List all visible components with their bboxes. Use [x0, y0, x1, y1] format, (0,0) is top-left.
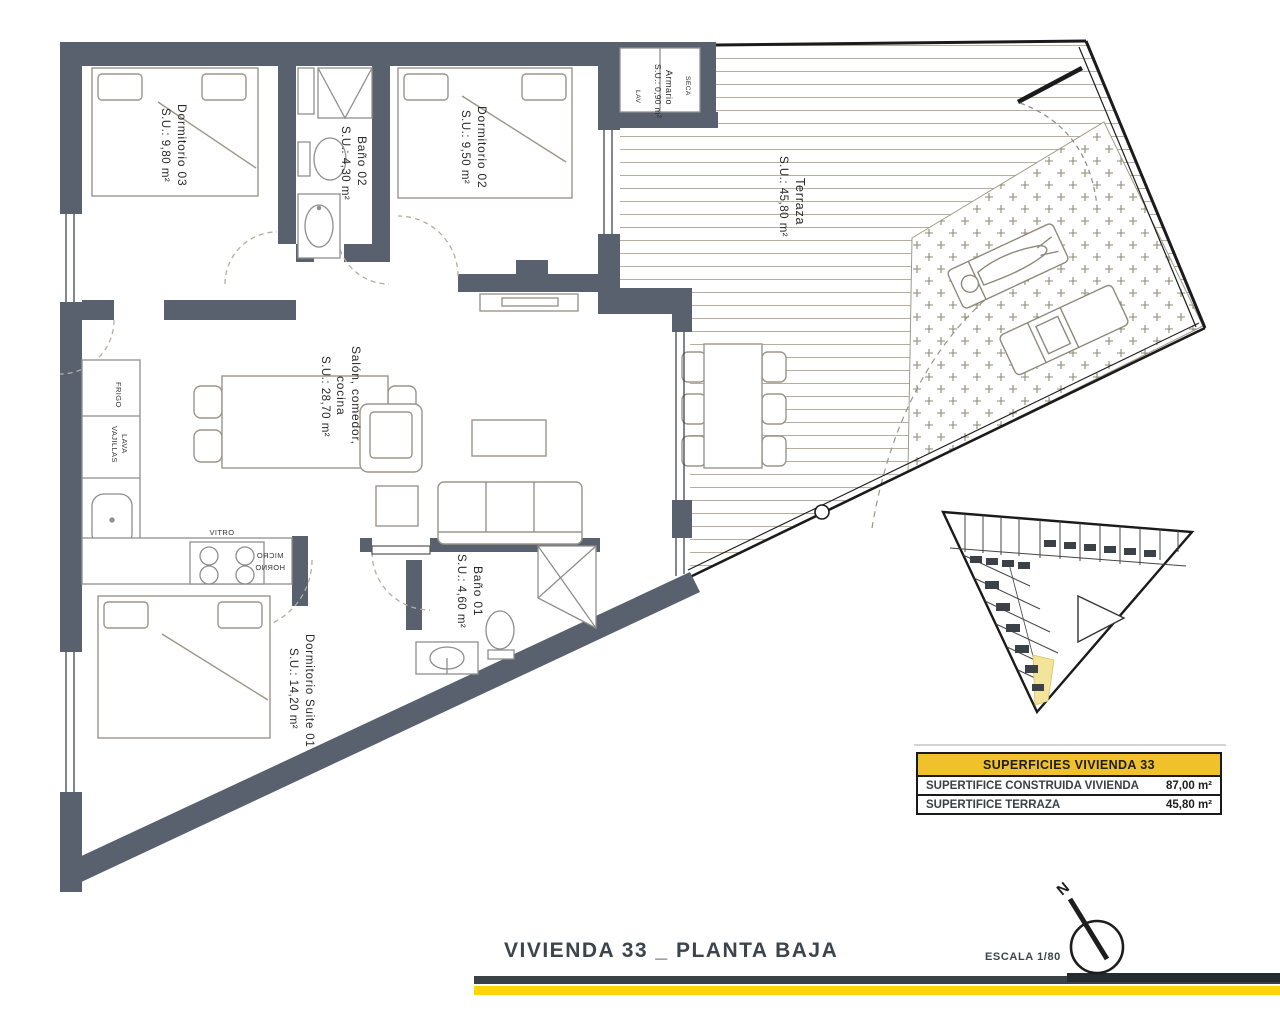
north-compass: N: [1054, 879, 1123, 973]
row-value: 45,80 m²: [1166, 799, 1212, 811]
svg-text:S.U.: 4,30 m²: S.U.: 4,30 m²: [339, 126, 351, 200]
bed-suite-01: [98, 596, 270, 738]
bathroom1-fixtures: [416, 546, 596, 674]
svg-text:S.U.: 9,80 m²: S.U.: 9,80 m²: [159, 108, 171, 182]
svg-text:cocina: cocina: [334, 376, 348, 416]
bed-dormitorio-03: [92, 68, 258, 196]
fridge-label: FRIGO: [114, 382, 123, 408]
row-label: SUPERTIFICE CONSTRUIDA VIVIENDA: [926, 780, 1139, 792]
svg-text:S.U.: 4,60 m²: S.U.: 4,60 m²: [455, 554, 467, 628]
svg-text:Armario: Armario: [664, 70, 674, 105]
svg-text:SECA: SECA: [684, 76, 691, 96]
svg-text:Salón, comedor,: Salón, comedor,: [349, 346, 363, 445]
row-label: SUPERTIFICE TERRAZA: [926, 799, 1060, 811]
room-label-bano-02: Baño 02 S.U.: 4,30 m²: [339, 126, 369, 200]
page-title: VIVIENDA 33 _ PLANTA BAJA: [504, 939, 838, 962]
oven-label: HORNO: [255, 563, 285, 572]
svg-text:Dormitorio 02: Dormitorio 02: [475, 106, 489, 188]
table-row: SUPERTIFICE CONSTRUIDA VIVIENDA 87,00 m²: [918, 777, 1220, 794]
washer-label: LAV: [634, 90, 641, 103]
svg-text:Dormitorio Suite 01: Dormitorio Suite 01: [303, 634, 315, 748]
svg-text:Dormitorio 03: Dormitorio 03: [175, 104, 189, 186]
row-value: 87,00 m²: [1166, 780, 1212, 792]
svg-text:Baño 01: Baño 01: [471, 566, 485, 616]
scale-label: ESCALA 1/80: [985, 951, 1061, 963]
hob-label: VITRO: [210, 528, 235, 537]
site-key-plan: [943, 512, 1192, 712]
divider-bars: [474, 973, 1280, 995]
living-room-furniture: [360, 294, 582, 544]
svg-text:FRIGO: FRIGO: [114, 382, 123, 408]
svg-text:VAJILLAS: VAJILLAS: [110, 426, 119, 463]
dryer-label: SECA: [684, 76, 691, 96]
room-label-suite-01: Dormitorio Suite 01 S.U.: 14,20 m²: [287, 634, 315, 748]
north-label: N: [1054, 879, 1073, 899]
table-top-rule: [914, 744, 1226, 746]
bathroom1-door-leaf: [372, 546, 430, 554]
svg-text:Terraza: Terraza: [793, 178, 807, 225]
summary-table: SUPERFICIES VIVIENDA 33 SUPERTIFICE CONS…: [916, 752, 1222, 815]
svg-text:S.U.: 9,50 m²: S.U.: 9,50 m²: [459, 110, 471, 184]
summary-table-header: SUPERFICIES VIVIENDA 33: [918, 754, 1220, 777]
svg-text:S.U.: 45,80 m²: S.U.: 45,80 m²: [777, 156, 789, 237]
svg-text:S.U.: 14,20 m²: S.U.: 14,20 m²: [287, 648, 299, 729]
microwave-label: MICRO: [257, 551, 284, 560]
outdoor-dining-table: [682, 344, 786, 468]
room-label-bano-01: Baño 01 S.U.: 4,60 m²: [455, 554, 485, 628]
svg-text:LAVA: LAVA: [120, 434, 129, 454]
svg-text:Baño 02: Baño 02: [355, 136, 369, 186]
svg-text:LAV: LAV: [634, 90, 641, 103]
table-row: SUPERTIFICE TERRAZA 45,80 m²: [918, 794, 1220, 813]
svg-text:S.U.: 28,70 m²: S.U.: 28,70 m²: [319, 356, 331, 437]
svg-text:S.U.: 0,90 m²: S.U.: 0,90 m²: [653, 64, 663, 118]
floor-plan-drawing: Dormitorio 03 S.U.: 9,80 m² Baño 02 S.U.…: [0, 0, 1280, 1024]
